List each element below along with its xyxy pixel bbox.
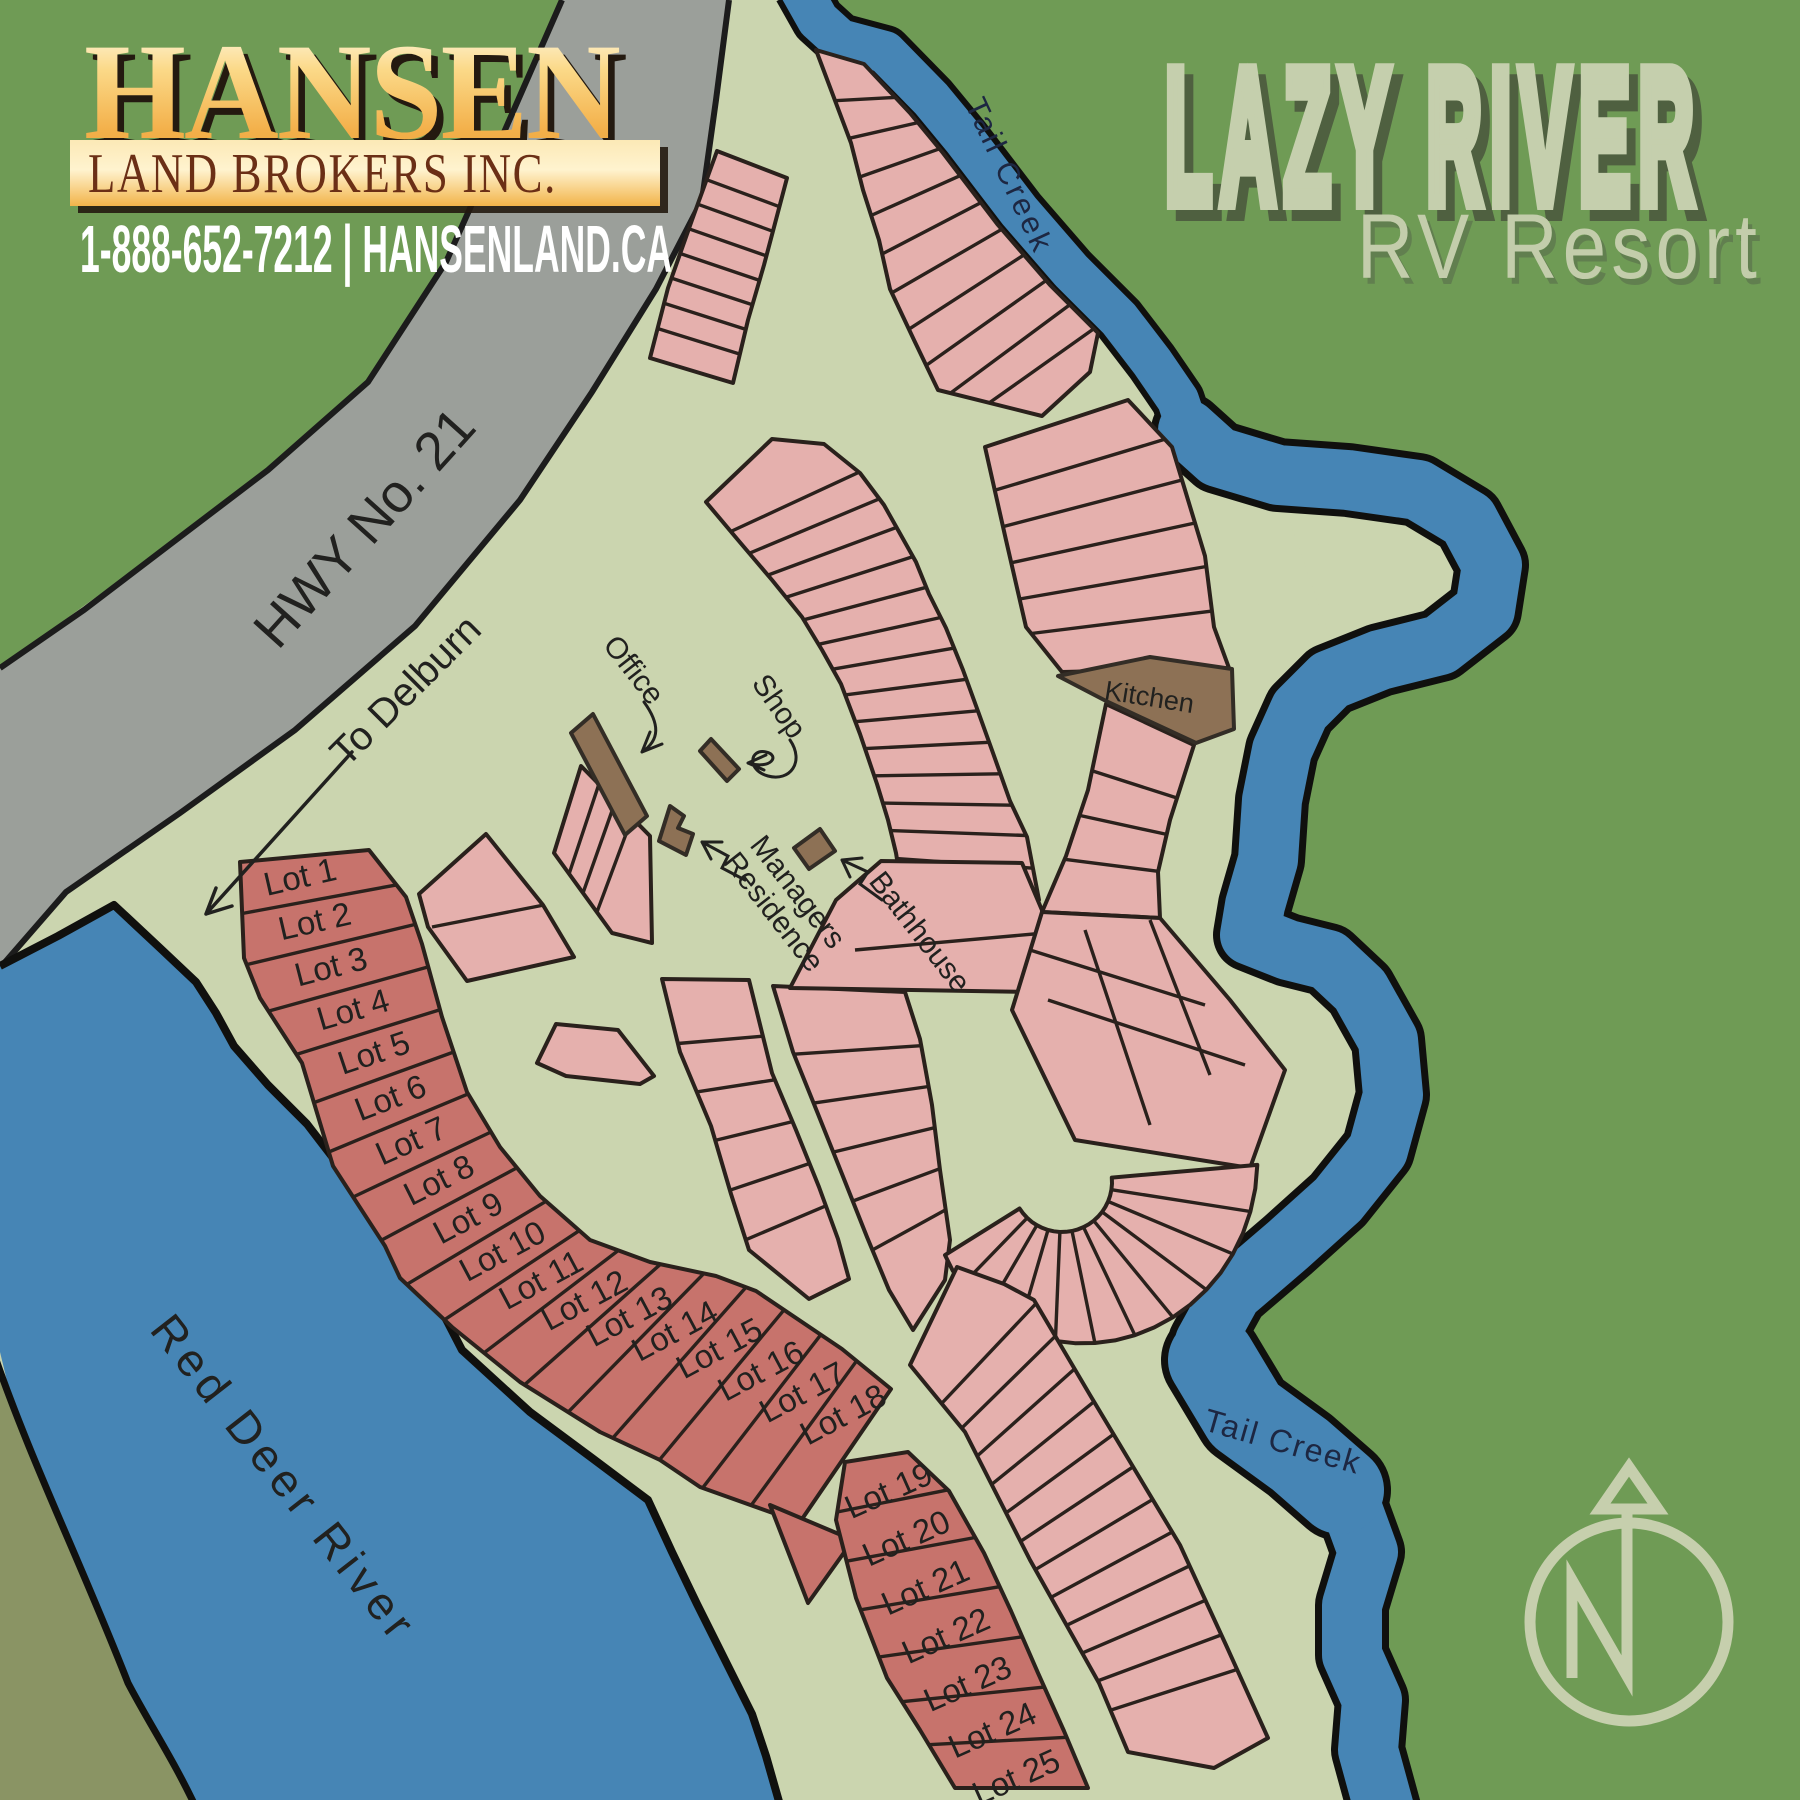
svg-text:LAND BROKERS INC.: LAND BROKERS INC. xyxy=(88,142,557,204)
svg-text:1-888-652-7212 | HANSENLAND.CA: 1-888-652-7212 | HANSENLAND.CA xyxy=(80,212,672,288)
svg-text:RV Resort: RV Resort xyxy=(1357,196,1762,298)
